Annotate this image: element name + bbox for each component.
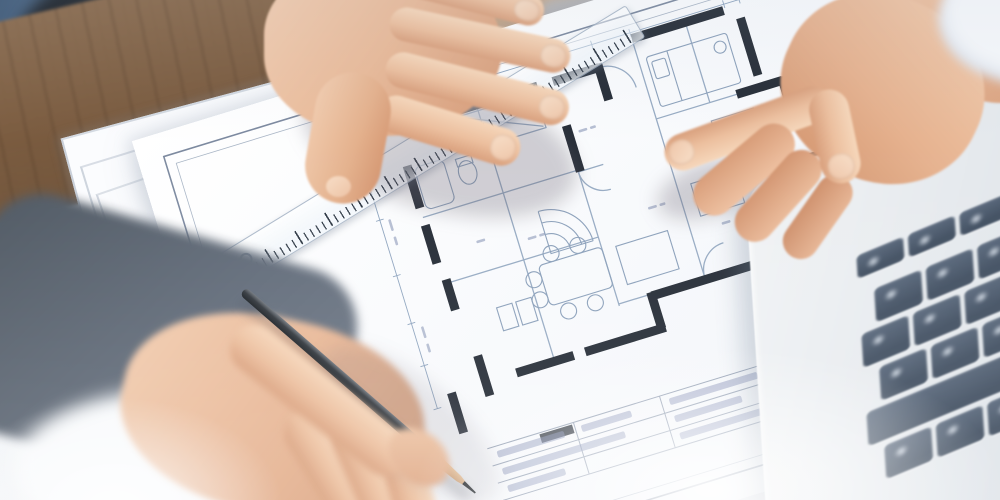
fingernail: [512, 0, 542, 23]
thumbnail: [326, 176, 351, 197]
fingernail: [536, 92, 567, 122]
photo-scene: [0, 0, 1000, 500]
key-glyph: [894, 443, 908, 459]
key-glyph: [889, 365, 903, 381]
fingernail: [665, 136, 698, 169]
thumbnail: [825, 151, 857, 182]
key-glyph: [946, 422, 960, 438]
key-glyph: [974, 289, 988, 305]
key-glyph: [941, 343, 955, 359]
fingernail: [538, 42, 568, 70]
key-glyph: [992, 322, 1000, 338]
hand-resting: [240, 0, 640, 264]
key-glyph: [923, 311, 937, 327]
fingernail: [487, 131, 519, 163]
key-glyph: [872, 332, 886, 348]
